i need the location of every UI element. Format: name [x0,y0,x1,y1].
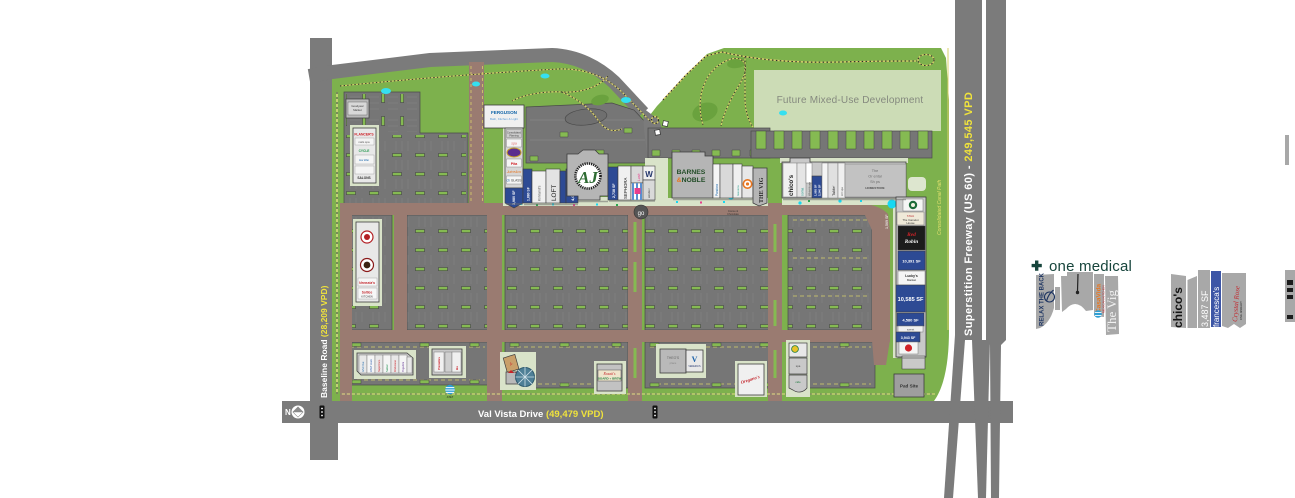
svg-text:&NOBLE: &NOBLE [677,177,706,184]
svg-text:Val Vista Drive (49,479 VPD): Val Vista Drive (49,479 VPD) [478,409,604,420]
svg-text:teavana: teavana [736,185,740,196]
svg-text:THEO'S: THEO'S [667,356,680,360]
svg-text:francesca's: francesca's [1212,287,1221,327]
svg-text:Bo: Bo [455,366,459,370]
svg-text:Rosati's: Rosati's [603,372,617,376]
svg-text:HOMESTORE: HOMESTORE [865,186,884,190]
svg-text:SuperCuts: SuperCuts [377,359,381,372]
svg-text:Pad Site: Pad Site [900,384,919,389]
svg-text:nails spa: nails spa [358,140,369,144]
svg-text:sweet: sweet [907,328,915,332]
svg-text:FLANCER'S: FLANCER'S [354,133,374,137]
svg-text:chico's: chico's [1171,287,1185,328]
svg-text:WhiteHouse: WhiteHouse [808,181,812,196]
svg-text:KITCHEN: KITCHEN [361,295,373,299]
svg-text:FireHouse: FireHouse [393,359,397,372]
svg-text:Lush: Lush [637,174,641,181]
svg-text:CYCLE: CYCLE [359,149,370,153]
svg-text:1,880 SF: 1,880 SF [527,187,531,201]
svg-text:10,391 SF: 10,391 SF [902,259,921,264]
svg-text:chico's: chico's [788,174,795,196]
svg-text:N: N [285,408,291,417]
svg-text:Consolidated Canal Path: Consolidated Canal Path [937,179,943,235]
svg-text:1,569 SF: 1,569 SF [885,214,889,229]
svg-text:2,738 SF: 2,738 SF [612,183,616,198]
svg-text:Ha Wai: Ha Wai [359,158,369,162]
svg-text:V: V [692,355,698,364]
svg-text:FERGUSON: FERGUSON [491,110,518,115]
svg-text:cafe: cafe [795,380,801,384]
svg-text:The: The [872,169,879,173]
svg-text:LIV spa: LIV spa [840,187,844,196]
svg-text:House: House [906,221,915,225]
svg-text:Market: Market [353,108,362,112]
svg-text:Baseline Road (28,209 VPD): Baseline Road (28,209 VPD) [319,285,329,398]
svg-text:place: place [670,361,677,365]
svg-text:3,980 SF: 3,980 SF [512,190,516,205]
svg-text:Yogurtini: Yogurtini [401,362,405,372]
svg-text:Pandora: Pandora [715,184,719,196]
svg-text:SALONS: SALONS [357,176,370,180]
svg-text:4,580 SF: 4,580 SF [902,318,919,323]
svg-text:BARNES: BARNES [677,169,706,176]
svg-text:2,240 SF: 2,240 SF [818,184,822,196]
svg-text:Planning: Planning [509,135,519,138]
svg-text:AJ: AJ [577,168,598,187]
svg-text:SEPHORA: SEPHORA [623,177,628,199]
svg-text:GNC live: GNC live [361,361,365,372]
svg-text:Kirkland's: Kirkland's [538,185,542,201]
svg-text:Venezia's: Venezia's [359,281,375,285]
svg-text:Chocolate: Chocolate [727,212,739,216]
svg-text:Robin: Robin [904,239,918,245]
svg-text:AT&T store: AT&T store [369,359,373,372]
svg-text:THE VIG: THE VIG [759,177,765,203]
svg-text:FINE JEWELRY: FINE JEWELRY [1239,301,1243,320]
svg-text:LOFT: LOFT [551,185,558,201]
svg-text:Juice&co: Juice&co [506,170,522,174]
svg-text:Superstition Freeway (US 60) -: Superstition Freeway (US 60) - 249,545 V… [963,92,975,336]
svg-text:PizzaRev: PizzaRev [437,357,441,370]
svg-text:go: go [638,211,645,217]
svg-text:Sh ps: Sh ps [870,180,880,184]
svg-text:spa: spa [796,364,801,368]
svg-text:10,585 SF: 10,585 SF [898,297,924,303]
svg-text:Pita: Pita [511,162,519,166]
svg-text:Red: Red [906,232,916,238]
svg-text:VENEZIA'S: VENEZIA'S [688,365,701,368]
svg-text:Bath, Kitchen & Light: Bath, Kitchen & Light [490,117,518,121]
svg-text:cb GLASS: cb GLASS [507,179,522,183]
svg-text:Market: Market [907,278,916,282]
svg-text:BOARD + BREW: BOARD + BREW [598,377,622,381]
svg-text:Or ental: Or ental [868,175,882,179]
svg-text:Soltice: Soltice [362,291,373,295]
svg-text:The Vig: The Vig [1104,290,1119,332]
svg-text:W: W [645,170,653,179]
svg-text:AT&T: AT&T [447,395,454,399]
svg-text:3,487 SF: 3,487 SF [1200,290,1210,327]
svg-text:spa: spa [511,142,517,146]
svg-text:Nekter: Nekter [385,364,389,372]
svg-text:soma: soma [801,188,805,196]
svg-text:Future Mixed-Use Development: Future Mixed-Use Development [777,95,924,106]
svg-text:TuMe': TuMe' [832,185,836,196]
svg-text:3,943 SF: 3,943 SF [901,336,916,340]
svg-text:windsor: windsor [647,188,651,198]
